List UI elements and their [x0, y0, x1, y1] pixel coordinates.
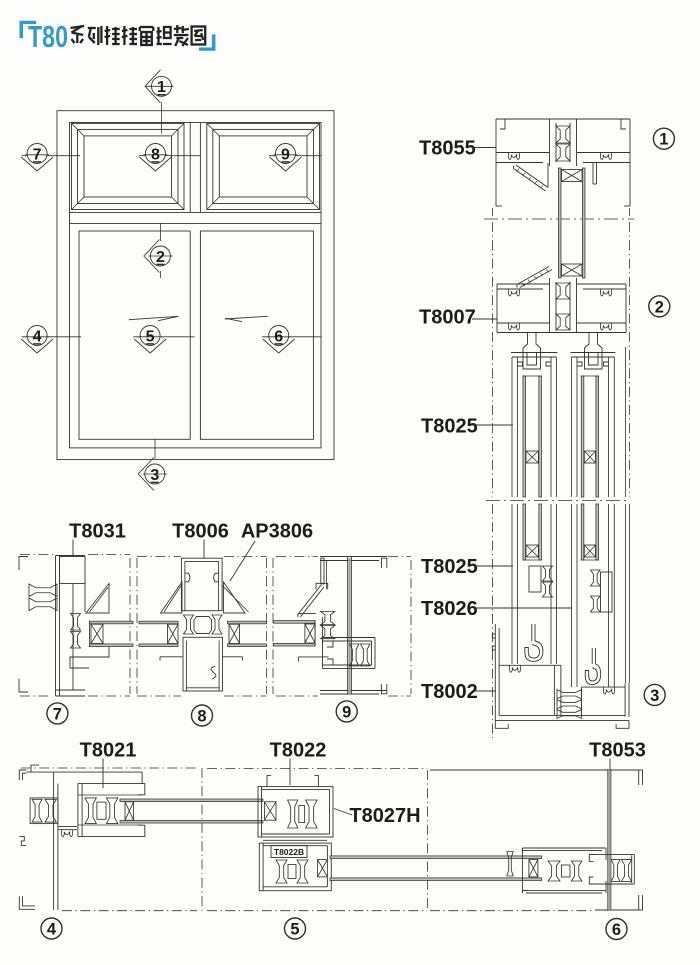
- svg-text:T8021: T8021: [80, 740, 137, 762]
- svg-text:T8022B: T8022B: [274, 847, 304, 857]
- svg-text:T8027H: T8027H: [349, 805, 420, 827]
- svg-text:6: 6: [274, 328, 283, 345]
- svg-text:T8007: T8007: [419, 307, 476, 329]
- svg-text:4: 4: [47, 921, 57, 939]
- svg-text:T8002: T8002: [421, 681, 478, 703]
- svg-text:1: 1: [157, 79, 166, 96]
- svg-text:8: 8: [151, 146, 160, 163]
- svg-text:T8031: T8031: [69, 521, 126, 543]
- svg-text:5: 5: [290, 921, 299, 939]
- svg-text:T8022: T8022: [270, 740, 327, 762]
- svg-text:6: 6: [612, 921, 621, 939]
- svg-text:T8055: T8055: [419, 138, 476, 160]
- svg-text:5: 5: [146, 328, 155, 345]
- svg-text:7: 7: [53, 705, 62, 723]
- svg-text:8: 8: [197, 708, 206, 726]
- svg-text:2: 2: [156, 249, 165, 266]
- svg-text:9: 9: [342, 703, 351, 721]
- svg-text:T8026: T8026: [421, 598, 478, 620]
- svg-text:4: 4: [33, 328, 42, 345]
- svg-text:7: 7: [33, 146, 42, 163]
- svg-text:3: 3: [150, 467, 159, 484]
- svg-text:T8053: T8053: [589, 740, 646, 762]
- svg-text:T8006: T8006: [172, 521, 229, 543]
- svg-text:AP3806: AP3806: [241, 521, 313, 543]
- svg-text:T8025: T8025: [421, 415, 478, 437]
- svg-text:2: 2: [655, 298, 664, 316]
- svg-text:T8025: T8025: [421, 556, 478, 578]
- svg-text:9: 9: [281, 146, 290, 163]
- svg-text:1: 1: [659, 131, 668, 149]
- svg-text:3: 3: [650, 687, 659, 705]
- svg-text:T80: T80: [28, 19, 68, 54]
